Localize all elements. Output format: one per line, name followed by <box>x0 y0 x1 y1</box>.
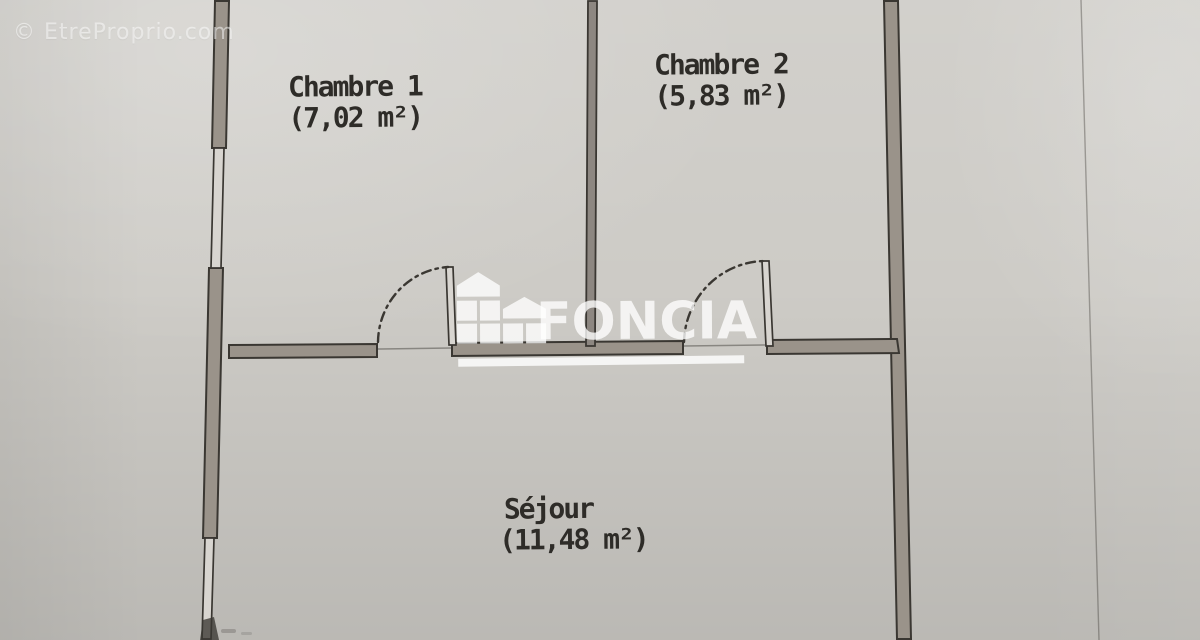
wall-horizontal-left <box>229 344 377 358</box>
watermark-etreproprio: © EtreProprio.com <box>13 20 235 45</box>
wall-partition-middle <box>586 1 597 346</box>
room-area-sejour: (11,48 m²) <box>499 523 648 555</box>
windows-doors-group <box>202 148 773 639</box>
room-name-chambre-2: Chambre 2 <box>646 48 796 80</box>
floorplan-photo: Chambre 1 (7,02 m²) Chambre 2 (5,83 m²) … <box>0 0 1200 640</box>
bottom-smudge-marks <box>200 617 252 640</box>
smudge-dash <box>221 629 236 633</box>
partition-wall-group <box>586 1 597 346</box>
wall-horizontal-mid <box>452 341 683 356</box>
room-name-chambre-1: Chambre 1 <box>280 70 430 102</box>
room-area-chambre-1: (7,02 m²) <box>280 101 430 133</box>
room-name-sejour: Séjour <box>499 492 648 524</box>
window-left-upper <box>211 148 224 268</box>
door-leaf-2 <box>762 261 773 346</box>
smudge-dash <box>241 632 252 635</box>
room-label-chambre-2: Chambre 2 (5,83 m²) <box>646 48 797 111</box>
wall-left-mid <box>203 268 223 538</box>
room-label-sejour: Séjour (11,48 m²) <box>499 492 648 555</box>
room-label-chambre-1: Chambre 1 (7,02 m²) <box>280 70 431 133</box>
paper-fold-line <box>1081 0 1099 640</box>
room-area-chambre-2: (5,83 m²) <box>646 79 796 111</box>
wall-horizontal-right <box>767 339 899 354</box>
door-leaf-1 <box>446 267 456 345</box>
door-swing-arc-1 <box>378 267 448 342</box>
wall-right <box>884 1 911 639</box>
door-threshold-2 <box>684 345 766 346</box>
door-swing-arc-2 <box>684 261 764 342</box>
door-arcs-group <box>378 261 764 342</box>
door-threshold-1 <box>378 348 451 349</box>
